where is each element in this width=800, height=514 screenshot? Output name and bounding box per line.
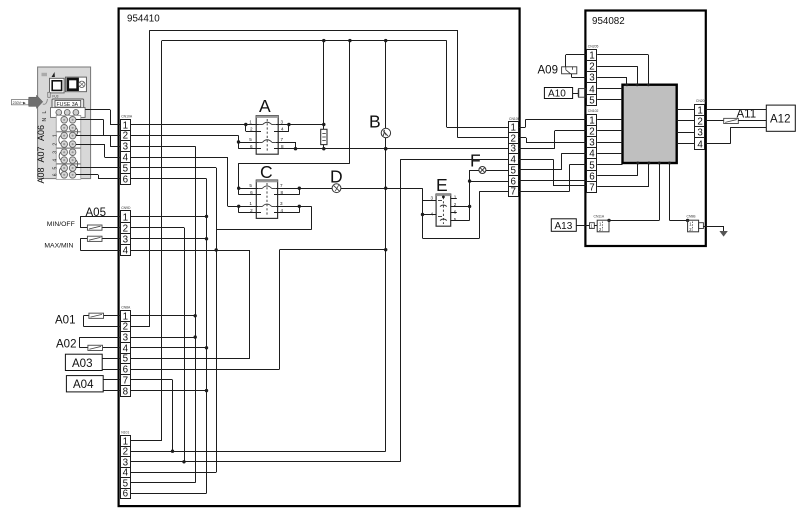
svg-text:4: 4 [123,152,129,163]
svg-text:FUSE 3A: FUSE 3A [57,102,79,108]
svg-text:2: 2 [250,126,253,131]
svg-text:3: 3 [123,234,129,245]
svg-text:A13: A13 [555,221,573,232]
svg-text:2: 2 [123,130,128,141]
svg-text:A07: A07 [36,146,46,162]
svg-text:5: 5 [249,137,252,142]
svg-text:A: A [259,96,271,116]
svg-text:2: 2 [53,143,59,146]
svg-text:3: 3 [123,141,129,152]
svg-text:1: 1 [249,119,252,124]
svg-text:A03: A03 [72,358,92,370]
svg-text:CN205: CN205 [588,45,599,49]
svg-text:A08: A08 [36,167,46,183]
svg-text:954082: 954082 [592,16,625,27]
svg-text:E: E [436,175,448,195]
svg-text:1: 1 [589,115,594,126]
svg-text:4: 4 [510,154,516,165]
svg-text:2: 2 [123,223,128,234]
svg-text:FU3: FU3 [52,95,58,99]
svg-text:4: 4 [281,126,284,131]
svg-text:A05: A05 [86,207,106,219]
svg-text:6: 6 [589,171,595,182]
svg-text:B: B [369,112,381,132]
svg-text:2: 2 [697,116,702,127]
svg-text:2: 2 [123,446,128,457]
svg-text:5: 5 [123,163,129,174]
svg-text:7: 7 [589,182,594,193]
svg-text:1: 1 [589,50,594,61]
svg-text:2: 2 [123,321,128,332]
svg-text:L: L [42,111,48,114]
svg-text:A02: A02 [56,339,76,351]
svg-text:5: 5 [510,165,516,176]
svg-text:954410: 954410 [127,14,160,25]
svg-text:6: 6 [123,488,129,499]
svg-text:3: 3 [281,119,284,124]
svg-text:4: 4 [589,84,595,95]
svg-text:7: 7 [123,375,128,386]
svg-text:1: 1 [697,105,702,116]
svg-text:1: 1 [510,122,515,133]
svg-text:CN201: CN201 [696,99,707,103]
svg-text:CN11A: CN11A [594,215,605,219]
svg-text:6: 6 [123,364,129,375]
svg-text:C: C [260,162,273,182]
svg-text:4: 4 [431,211,434,216]
svg-text:MAX/MIN: MAX/MIN [44,243,73,250]
svg-text:4: 4 [53,159,59,162]
svg-text:3: 3 [431,196,434,201]
svg-text:A11: A11 [737,109,757,121]
svg-text:2: 2 [589,126,594,137]
svg-text:6: 6 [454,209,457,214]
svg-text:MIN/OFF: MIN/OFF [47,221,75,228]
svg-text:7: 7 [280,183,283,188]
svg-text:4: 4 [589,148,595,159]
svg-text:2: 2 [589,61,594,72]
svg-text:N: N [42,118,48,122]
svg-text:CN8A: CN8A [121,306,131,310]
svg-text:A10: A10 [548,89,566,100]
svg-text:4: 4 [123,245,129,256]
svg-text:A09: A09 [538,65,558,77]
svg-text:7: 7 [510,186,515,197]
svg-text:3: 3 [53,151,59,154]
svg-text:A04: A04 [73,379,94,391]
svg-text:230V~▶: 230V~▶ [13,101,27,105]
svg-text:1: 1 [123,212,128,223]
svg-text:3: 3 [123,332,129,343]
svg-text:5: 5 [123,353,129,364]
svg-text:6: 6 [53,173,59,176]
svg-text:3: 3 [697,127,703,138]
svg-text:7: 7 [281,137,284,142]
svg-text:A01: A01 [55,315,75,327]
svg-text:3: 3 [280,201,283,206]
svg-text:3: 3 [589,137,595,148]
svg-text:3: 3 [589,72,595,83]
svg-text:1: 1 [53,134,59,137]
svg-text:4: 4 [697,139,703,150]
svg-text:3: 3 [510,143,516,154]
svg-text:CN9D: CN9D [121,206,131,210]
svg-text:5: 5 [454,217,457,222]
svg-text:A12: A12 [770,114,790,126]
svg-text:N101: N101 [121,431,129,435]
svg-text:F: F [470,151,481,171]
svg-text:CN10B: CN10B [509,117,521,121]
svg-text:6: 6 [123,174,129,185]
svg-text:8: 8 [123,386,129,397]
svg-text:5: 5 [53,167,59,170]
svg-text:1: 1 [249,201,252,206]
svg-text:4: 4 [123,467,129,478]
svg-text:5: 5 [589,95,595,106]
svg-text:A06: A06 [36,125,46,141]
svg-text:5: 5 [249,183,252,188]
svg-text:CN10A: CN10A [121,115,133,119]
svg-text:5: 5 [589,160,595,171]
svg-text:CN9B: CN9B [687,215,697,219]
svg-text:CN102: CN102 [588,109,599,113]
